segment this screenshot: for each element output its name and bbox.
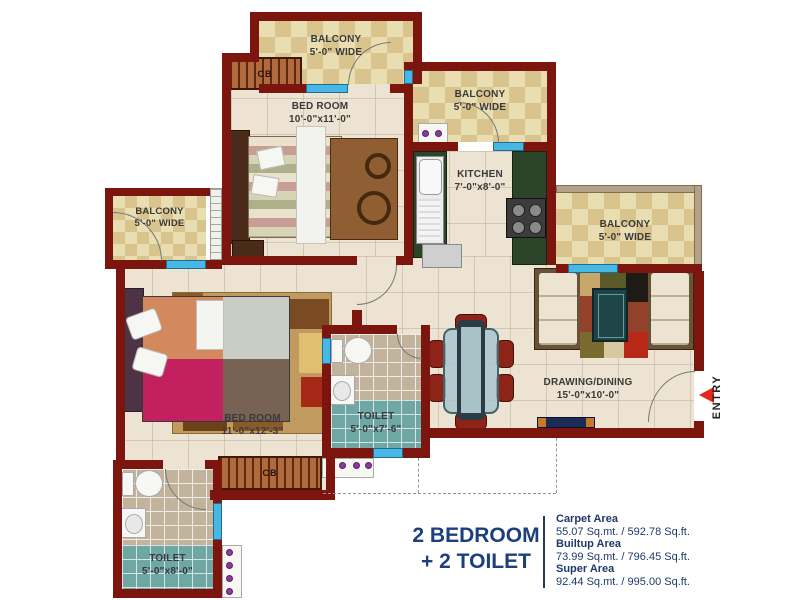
wall: [210, 490, 335, 500]
wall: [322, 325, 397, 334]
tv-unit-end: [538, 418, 546, 427]
sofa-cushions: [539, 273, 577, 345]
fridge: [422, 244, 462, 268]
wc-bowl: [135, 470, 163, 497]
runner-center: [461, 327, 481, 413]
room-dim: 11'-0"x12'-3": [160, 425, 345, 438]
label-toilet-bottom: TOILET 5'-0"x8'-0": [122, 552, 213, 578]
tap-dot: [339, 462, 346, 469]
area-value: 73.99 Sq.mt. / 796.45 Sq.ft.: [556, 551, 726, 564]
area-label: Builtup Area: [556, 538, 621, 550]
window: [493, 142, 524, 151]
room-dim: 15'-0"x10'-0": [500, 389, 676, 402]
plan-title-line1: 2 BEDROOM: [406, 523, 546, 549]
wall: [413, 12, 422, 84]
window: [404, 70, 413, 84]
burner: [512, 221, 525, 234]
wall: [116, 269, 125, 460]
sofa-cushions: [651, 273, 689, 345]
tap-dot: [365, 462, 372, 469]
window: [322, 338, 331, 364]
wc-tank: [122, 472, 134, 496]
area-value: 92.44 Sq.mt. / 995.00 Sq.ft.: [556, 576, 726, 589]
wall: [421, 325, 430, 458]
basin-bowl: [125, 514, 143, 534]
wall: [524, 142, 547, 151]
room-name: TOILET: [122, 552, 213, 565]
quilt-quarter: [223, 297, 289, 359]
balcony-wash-basin: [418, 123, 448, 143]
wc-tank: [331, 339, 343, 363]
stove: [506, 198, 546, 238]
swirl-rug: [330, 138, 398, 240]
wall: [618, 264, 702, 273]
bed-runner: [296, 126, 326, 244]
wall: [113, 589, 222, 598]
wall: [430, 428, 704, 438]
wall: [259, 84, 306, 93]
wall: [105, 188, 210, 196]
burner: [512, 204, 525, 217]
wc-bowl: [344, 337, 372, 364]
wall: [222, 53, 231, 265]
cupboard-label: CB: [263, 468, 278, 478]
room-name: KITCHEN: [413, 168, 547, 181]
rug-swirl-motif: [357, 191, 391, 225]
room-dim: 10'-0"x11'-0": [240, 113, 400, 126]
tv-unit-end: [586, 418, 594, 427]
wall-stub: [352, 310, 362, 325]
sofa: [534, 268, 582, 350]
sink-drainboard: [419, 199, 440, 240]
wall: [404, 62, 413, 265]
window: [568, 264, 618, 273]
summary-divider: [543, 516, 545, 588]
wardrobe-cupboard: CB: [218, 456, 322, 490]
wall: [404, 62, 556, 71]
window: [213, 503, 222, 540]
label-balcony-left: BALCONY 5'-0" WIDE: [113, 206, 206, 231]
dashed-boundary: [556, 438, 557, 493]
label-balcony-right: BALCONY 5'-0" WIDE: [556, 218, 694, 244]
wash-basin: [327, 375, 355, 405]
room-dim: 5'-0" WIDE: [556, 231, 694, 244]
wall: [113, 460, 163, 469]
tap-dot: [353, 462, 360, 469]
floor-plan: CB CB: [0, 0, 800, 600]
pillow: [251, 174, 280, 198]
label-kitchen: KITCHEN 7'-0"x8'-0": [413, 168, 547, 194]
parapet-wall: [694, 185, 702, 273]
dashed-boundary: [418, 458, 419, 493]
window: [166, 260, 206, 269]
window: [373, 448, 403, 458]
coffee-table: [592, 288, 628, 342]
wall: [250, 12, 422, 21]
room-name: BED ROOM: [240, 100, 400, 113]
label-balcony-kitchen: BALCONY 5'-0" WIDE: [413, 88, 547, 114]
area-value: 55.07 Sq.mt. / 592.78 Sq.ft.: [556, 526, 726, 539]
basin-bowl: [333, 381, 351, 401]
wall: [547, 62, 556, 265]
tap-dot: [226, 575, 233, 582]
room-name: BALCONY: [259, 33, 413, 46]
entry-label: ENTRY: [711, 367, 727, 427]
room-name: BED ROOM: [160, 412, 345, 425]
room-name: BALCONY: [556, 218, 694, 231]
room-dim: 7'-0"x8'-0": [413, 181, 547, 194]
wall: [222, 256, 357, 265]
burner: [529, 221, 542, 234]
room-dim: 5'-0" WIDE: [413, 101, 547, 114]
room-dim: 5'-0"x7'-6": [331, 423, 421, 436]
label-bedroom-left: BED ROOM 11'-0"x12'-3": [160, 412, 345, 438]
sofa: [646, 268, 694, 350]
plan-title-line2: + 2 TOILET: [406, 549, 546, 575]
wall: [694, 271, 704, 371]
duct-shaft: [210, 188, 222, 260]
area-label: Carpet Area: [556, 513, 618, 525]
room-name: BALCONY: [113, 206, 206, 218]
tap-dot: [226, 562, 233, 569]
bed-headboard: [230, 130, 250, 244]
label-bedroom-top: BED ROOM 10'-0"x11'-0": [240, 100, 400, 126]
label-toilet-mid: TOILET 5'-0"x7'-6": [331, 410, 421, 436]
dining-table-runner: [457, 320, 485, 420]
tap-dot: [435, 130, 442, 137]
wall: [396, 256, 413, 265]
room-name: DRAWING/DINING: [500, 376, 676, 389]
room-name: BALCONY: [413, 88, 547, 101]
wall: [113, 460, 122, 598]
parapet-wall: [556, 185, 702, 193]
tap-dot: [226, 549, 233, 556]
area-summary: Carpet Area 55.07 Sq.mt. / 592.78 Sq.ft.…: [556, 513, 726, 589]
room-dim: 5'-0" WIDE: [113, 218, 206, 230]
dashed-boundary: [323, 493, 556, 494]
room-dim: 5'-0"x8'-0": [122, 565, 213, 578]
burner: [529, 204, 542, 217]
wall: [105, 260, 166, 269]
label-drawing-dining: DRAWING/DINING 15'-0"x10'-0": [500, 376, 676, 402]
room-name: TOILET: [331, 410, 421, 423]
tv-unit: [537, 417, 595, 428]
rug-patch: [626, 272, 648, 302]
label-balcony-top: BALCONY 5'-0" WIDE: [259, 33, 413, 59]
vanity-shelf: [222, 545, 242, 598]
room-dim: 5'-0" WIDE: [259, 46, 413, 59]
folded-towel: [196, 300, 224, 350]
window: [306, 84, 348, 93]
coffee-table-inset: [598, 294, 624, 338]
tap-dot: [226, 588, 233, 595]
wash-basin: [120, 508, 146, 538]
cupboard-label: CB: [258, 69, 273, 79]
wall: [105, 188, 113, 268]
tap-dot: [422, 130, 429, 137]
wall: [556, 264, 568, 273]
wall: [413, 142, 458, 151]
wall: [206, 260, 222, 269]
rug-swirl-motif: [365, 153, 391, 179]
area-label: Super Area: [556, 563, 614, 575]
plan-title: 2 BEDROOM + 2 TOILET: [406, 523, 546, 576]
